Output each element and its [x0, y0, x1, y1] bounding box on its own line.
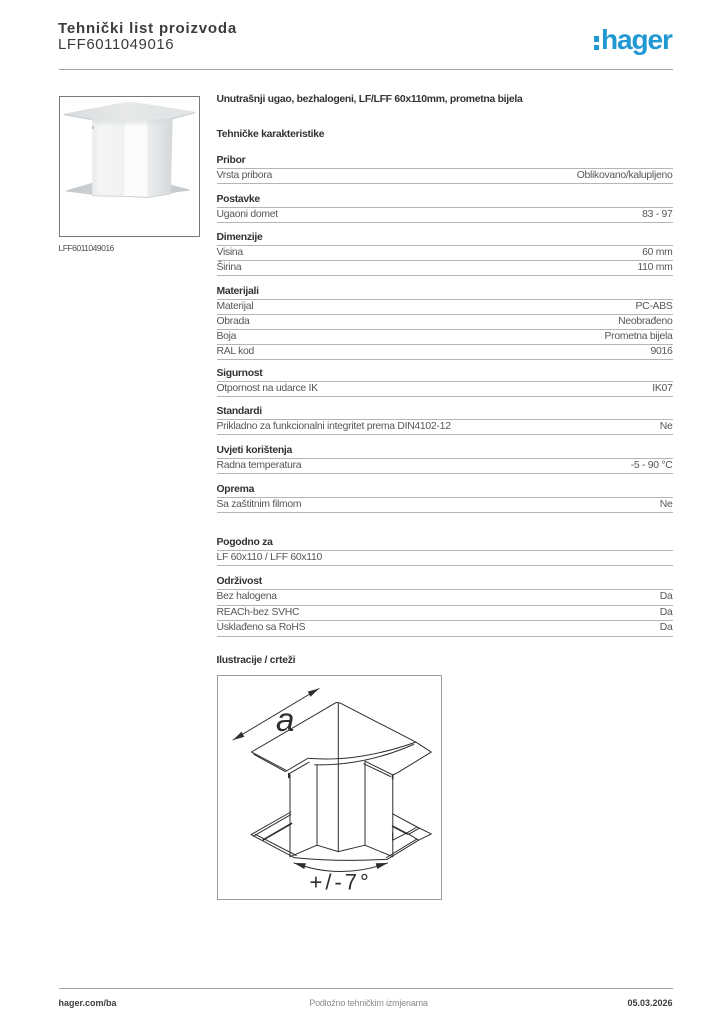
svg-text:a: a: [276, 701, 294, 738]
svg-text:+/-7°: +/-7°: [309, 869, 371, 894]
